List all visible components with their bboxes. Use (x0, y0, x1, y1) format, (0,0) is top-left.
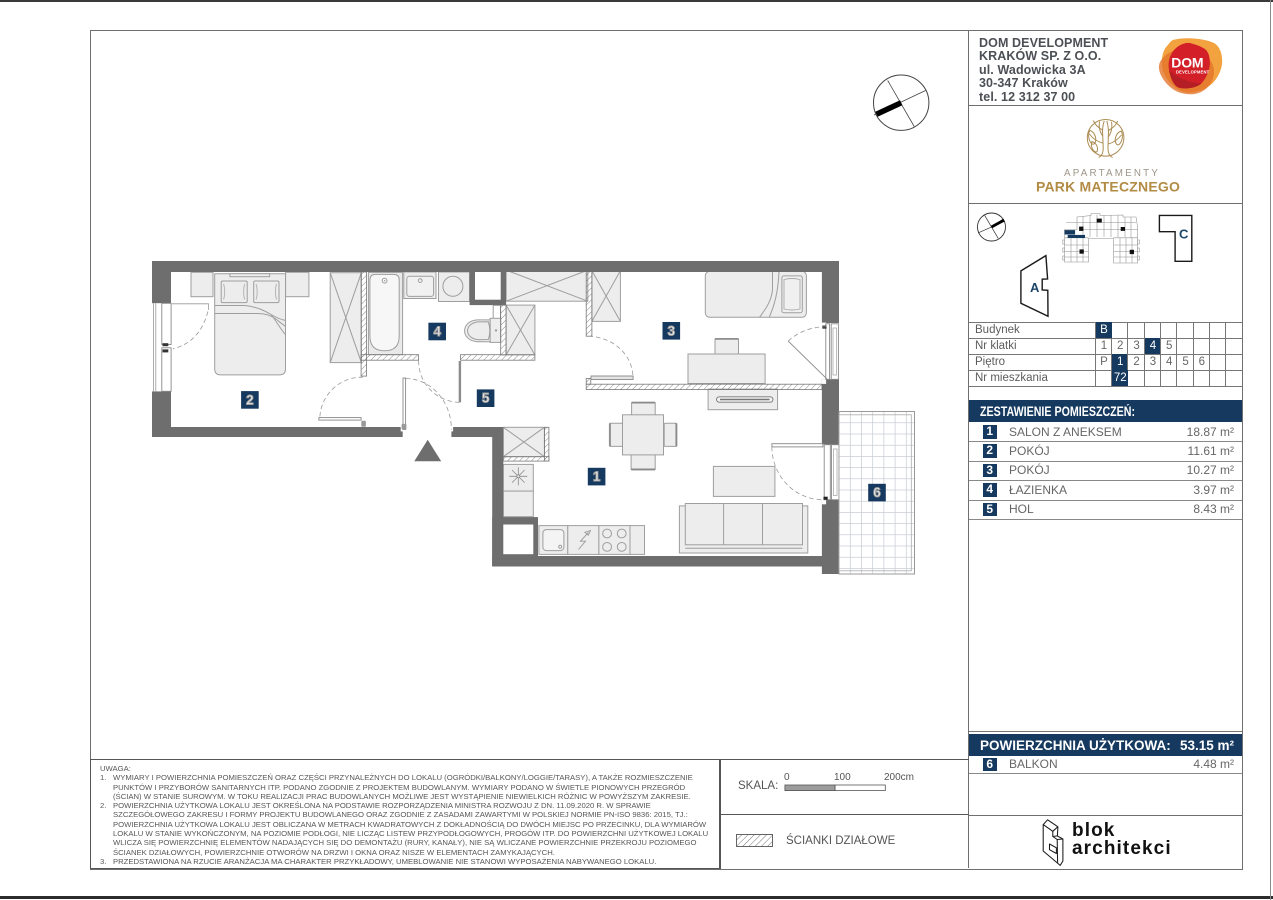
svg-text:6: 6 (873, 485, 881, 500)
svg-text:APARTAMENTY: APARTAMENTY (1064, 168, 1160, 179)
svg-text:DOM: DOM (1171, 55, 1203, 71)
svg-text:A: A (1030, 280, 1040, 295)
svg-text:0: 0 (784, 772, 790, 783)
svg-text:C: C (1179, 227, 1189, 242)
svg-text:DEVELOPMENT: DEVELOPMENT (1176, 69, 1210, 74)
svg-text:2: 2 (246, 392, 254, 407)
svg-text:1: 1 (593, 469, 601, 484)
svg-text:3: 3 (668, 323, 676, 338)
svg-text:PARK MATECZNEGO: PARK MATECZNEGO (1036, 179, 1180, 195)
svg-text:4: 4 (433, 324, 441, 339)
svg-text:5: 5 (482, 391, 490, 406)
svg-text:200cm: 200cm (884, 772, 914, 783)
svg-text:100: 100 (834, 772, 851, 783)
